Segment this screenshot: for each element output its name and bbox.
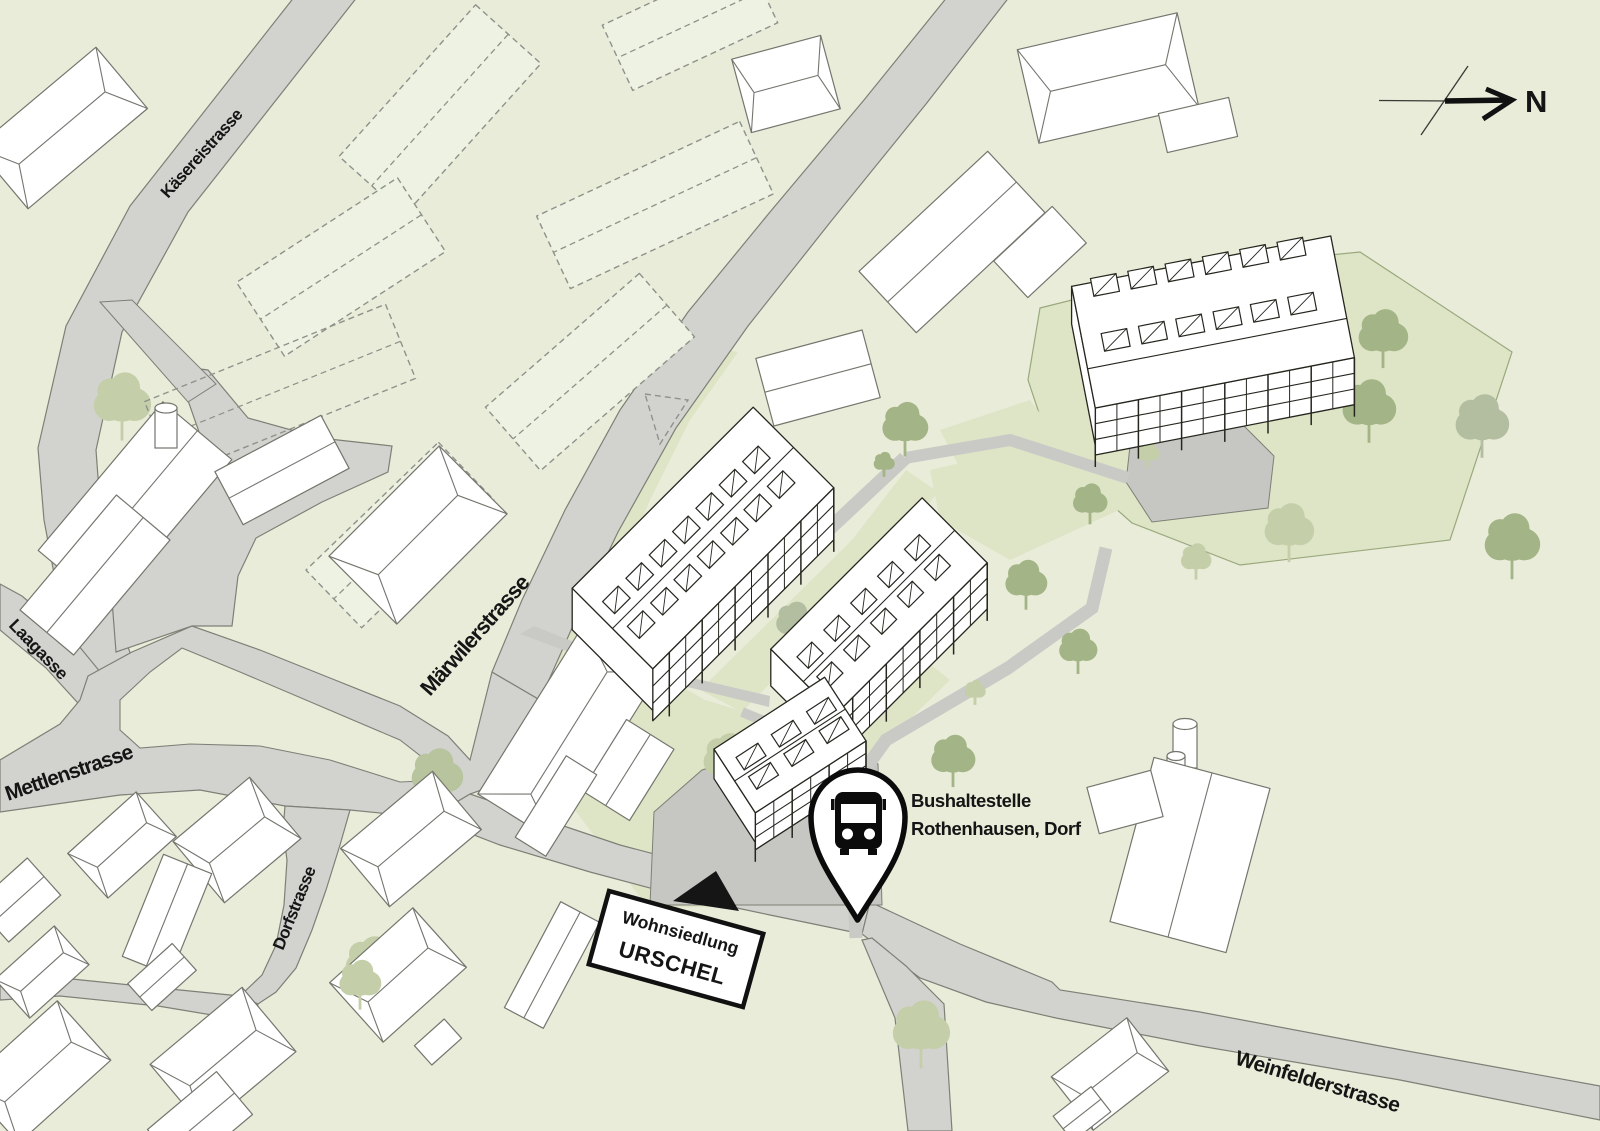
svg-text:Rothenhausen, Dorf: Rothenhausen, Dorf	[911, 818, 1082, 839]
svg-text:Bushaltestelle: Bushaltestelle	[911, 790, 1031, 811]
svg-text:N: N	[1525, 84, 1547, 119]
